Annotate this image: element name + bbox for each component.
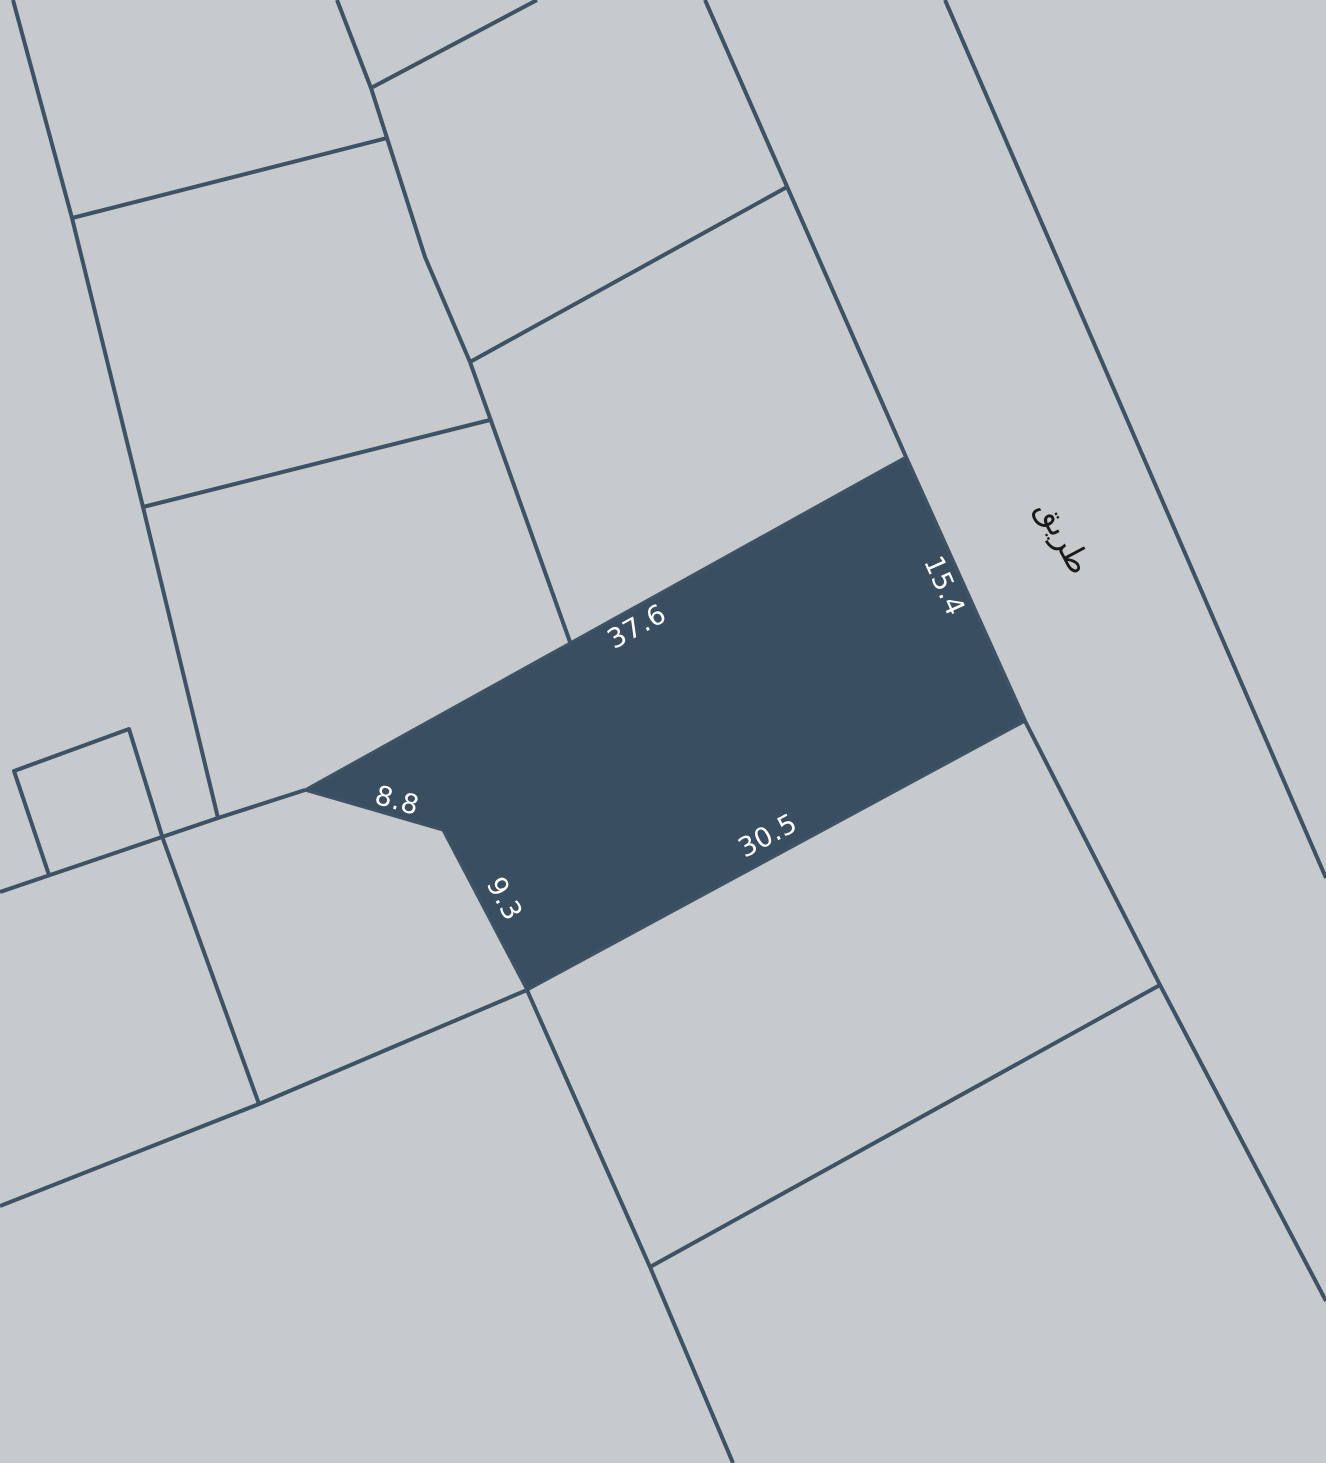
parcel-map-canvas: 37.615.48.89.330.5طريق [0,0,1326,1463]
cadastral-map: 37.615.48.89.330.5طريق [0,0,1326,1463]
